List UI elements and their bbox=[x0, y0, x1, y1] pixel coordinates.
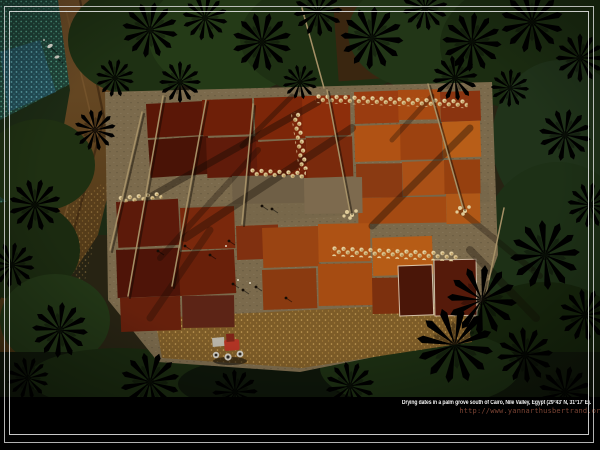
caption-bar: Drying dates in a palm grove south of Ca… bbox=[0, 397, 600, 450]
photo-credit-url: http://www.yannarthusbertrand.org bbox=[0, 407, 600, 415]
wallpaper-stage: Drying dates in a palm grove south of Ca… bbox=[0, 0, 600, 450]
aerial-photo-illustration bbox=[0, 0, 600, 397]
aerial-photo bbox=[0, 0, 600, 397]
vignette bbox=[0, 0, 600, 397]
photo-caption: Drying dates in a palm grove south of Ca… bbox=[95, 400, 591, 407]
